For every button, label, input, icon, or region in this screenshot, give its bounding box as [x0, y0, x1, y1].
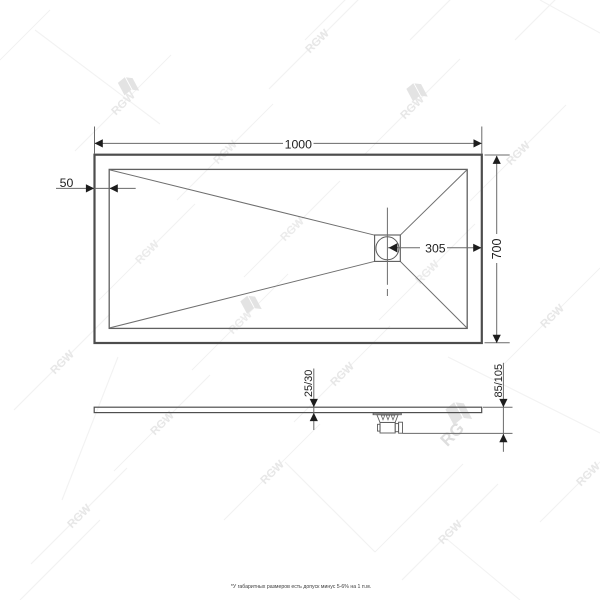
- svg-text:85/105: 85/105: [493, 364, 505, 398]
- svg-text:25/30: 25/30: [303, 370, 315, 398]
- svg-text:305: 305: [425, 241, 446, 255]
- svg-text:*У габаритных размеров есть до: *У габаритных размеров есть допуск минус…: [231, 584, 371, 590]
- svg-text:1000: 1000: [285, 138, 313, 152]
- svg-text:50: 50: [60, 176, 74, 190]
- svg-text:700: 700: [490, 239, 504, 260]
